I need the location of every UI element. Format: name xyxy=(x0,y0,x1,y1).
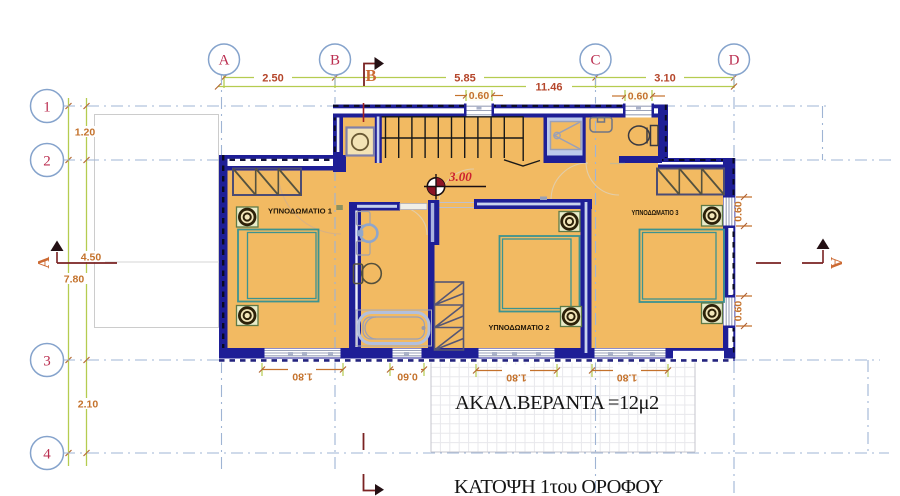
svg-text:D: D xyxy=(729,53,740,69)
svg-text:1.80: 1.80 xyxy=(617,372,638,384)
svg-text:ΑΚΑΛ.ΒΕΡΑΝΤΑ =12μ2: ΑΚΑΛ.ΒΕΡΑΝΤΑ =12μ2 xyxy=(455,392,659,414)
svg-text:A: A xyxy=(827,257,846,269)
svg-text:ΥΠΝΟΔΩΜΑΤΙΟ 3: ΥΠΝΟΔΩΜΑΤΙΟ 3 xyxy=(632,208,679,217)
svg-text:1: 1 xyxy=(43,100,51,116)
svg-text:1.80: 1.80 xyxy=(506,372,527,384)
svg-text:C: C xyxy=(590,53,600,69)
svg-text:3: 3 xyxy=(43,354,51,370)
svg-text:2.50: 2.50 xyxy=(262,73,283,85)
svg-text:2.10: 2.10 xyxy=(78,399,99,411)
svg-text:11.46: 11.46 xyxy=(536,82,563,94)
svg-text:0.60: 0.60 xyxy=(733,301,745,322)
svg-text:ΥΠΝΟΔΩΜΑΤΙΟ 2: ΥΠΝΟΔΩΜΑΤΙΟ 2 xyxy=(489,323,550,332)
svg-text:3.10: 3.10 xyxy=(654,73,675,85)
svg-text:A: A xyxy=(219,53,230,69)
svg-text:0.60: 0.60 xyxy=(733,201,745,222)
svg-text:0.60: 0.60 xyxy=(469,90,490,102)
svg-text:3.00: 3.00 xyxy=(448,169,472,184)
svg-text:B: B xyxy=(366,66,377,85)
svg-text:B: B xyxy=(330,53,340,69)
svg-text:5.85: 5.85 xyxy=(454,73,475,85)
svg-text:4: 4 xyxy=(43,447,51,463)
svg-text:0.60: 0.60 xyxy=(397,371,418,383)
svg-text:1.20: 1.20 xyxy=(75,127,96,139)
svg-text:A: A xyxy=(34,257,53,269)
svg-text:1.80: 1.80 xyxy=(292,371,313,383)
svg-text:ΥΠΝΟΔΩΜΑΤΙΟ 1: ΥΠΝΟΔΩΜΑΤΙΟ 1 xyxy=(268,207,332,216)
svg-text:7.80: 7.80 xyxy=(64,274,85,286)
svg-text:4.50: 4.50 xyxy=(81,252,102,264)
svg-text:ΚΑΤΟΨΗ 1του ΟΡΟΦΟΥ: ΚΑΤΟΨΗ 1του ΟΡΟΦΟΥ xyxy=(454,476,664,496)
svg-text:2: 2 xyxy=(43,154,51,170)
svg-text:0.60: 0.60 xyxy=(628,91,649,103)
